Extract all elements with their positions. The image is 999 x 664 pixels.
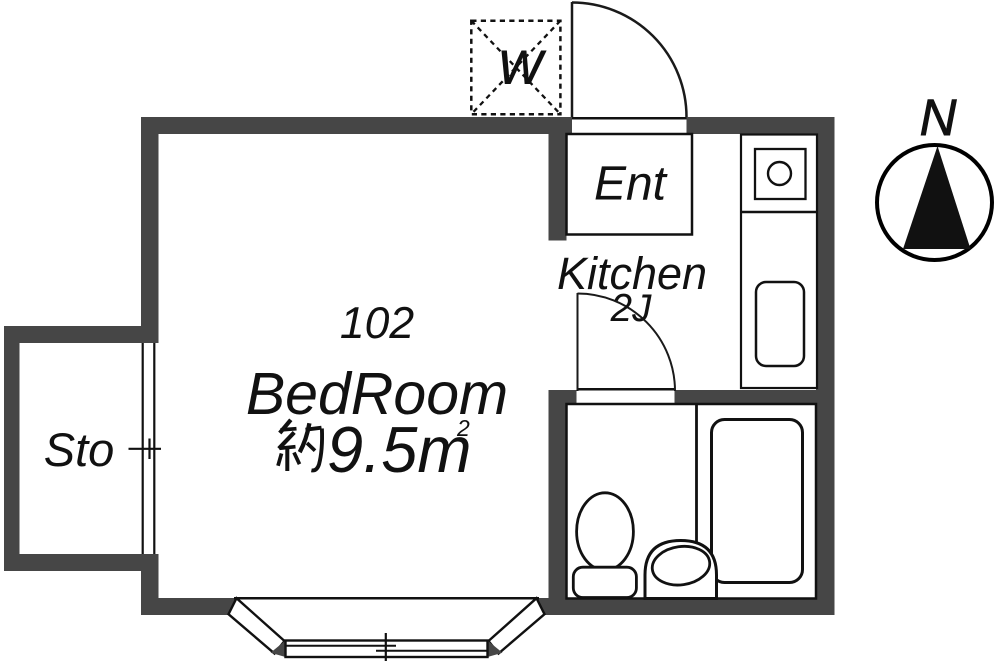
svg-text:9.5m: 9.5m <box>327 413 472 486</box>
svg-text:Ent: Ent <box>594 158 668 211</box>
svg-text:W: W <box>498 41 547 94</box>
svg-text:N: N <box>920 89 957 146</box>
svg-text:Sto: Sto <box>44 423 115 476</box>
svg-text:102: 102 <box>340 299 414 348</box>
svg-text:2: 2 <box>456 415 470 441</box>
svg-text:2J: 2J <box>610 287 652 330</box>
